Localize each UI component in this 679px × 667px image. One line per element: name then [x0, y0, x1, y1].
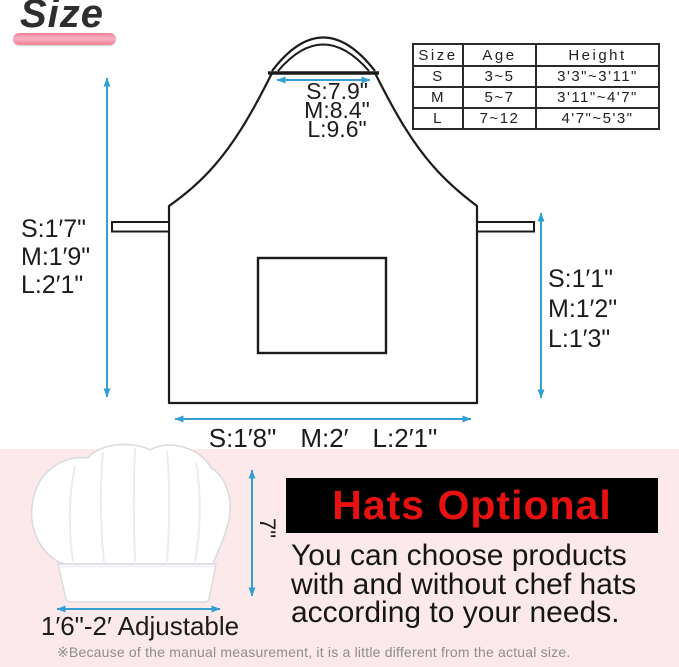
left-height-label: S:1′7" M:1′9" L:2′1" — [21, 215, 90, 299]
left-height-line-s: S:1′7" — [21, 215, 90, 243]
hats-description-line-1: You can choose products — [291, 542, 676, 571]
right-height-line-s: S:1′1" — [548, 264, 617, 294]
right-height-label: S:1′1" M:1′2" L:1′3" — [548, 264, 617, 354]
left-tie — [112, 222, 169, 232]
cell-height-s: 3'3"~3'11" — [536, 66, 659, 87]
table-row: M 5~7 3'11"~4'7" — [413, 87, 659, 108]
size-table-header-size: Size — [413, 44, 463, 66]
hats-description-line-2: with and without chef hats — [291, 571, 676, 600]
cell-height-m: 3'11"~4'7" — [536, 87, 659, 108]
neck-width-label: S:7.9" M:8.4" L:9.6" — [252, 82, 422, 139]
left-height-line-m: M:1′9" — [21, 243, 90, 271]
right-height-line-m: M:1′2" — [548, 294, 617, 324]
hats-description-line-3: according to your needs. — [291, 599, 676, 628]
hat-height-label: 7" — [256, 510, 278, 546]
pocket-outline — [258, 258, 386, 353]
neck-strap-inner-arc — [278, 45, 369, 72]
cell-size-m: M — [413, 87, 463, 108]
hats-description: You can choose products with and without… — [291, 542, 676, 628]
table-row: L 7~12 4'7"~5'3" — [413, 108, 659, 129]
page-title: Size — [20, 0, 104, 37]
cell-height-l: 4'7"~5'3" — [536, 108, 659, 129]
size-table-header-height: Height — [536, 44, 659, 66]
title-underline-accent — [13, 33, 116, 45]
bottom-width-label: S:1′8" M:2′ L:2′1" — [123, 423, 523, 454]
cell-age-l: 7~12 — [463, 108, 536, 129]
bottom-width-item-l: L:2′1" — [373, 423, 438, 454]
neck-strap-outer-arc — [272, 38, 375, 72]
hats-optional-banner: Hats Optional — [286, 478, 658, 533]
cell-size-l: L — [413, 108, 463, 129]
cell-age-s: 3~5 — [463, 66, 536, 87]
size-table-header-row: Size Age Height — [413, 44, 659, 66]
bottom-width-item-s: S:1′8" — [209, 423, 277, 454]
hats-optional-banner-text: Hats Optional — [332, 482, 612, 529]
apron-size-chart: Size S:7.9" M:8.4" L:9.6" S:1′7" M:1′9" … — [0, 0, 679, 667]
table-row: S 3~5 3'3"~3'11" — [413, 66, 659, 87]
left-height-line-l: L:2′1" — [21, 271, 90, 299]
measurement-footnote: ※Because of the manual measurement, it i… — [57, 644, 667, 661]
size-table: Size Age Height S 3~5 3'3"~3'11" M 5~7 3… — [412, 43, 660, 130]
cell-age-m: 5~7 — [463, 87, 536, 108]
size-table-header-age: Age — [463, 44, 536, 66]
neck-width-line-l: L:9.6" — [252, 120, 422, 139]
right-height-line-l: L:1′3" — [548, 324, 617, 354]
right-tie — [477, 222, 534, 232]
bottom-width-item-m: M:2′ — [300, 423, 348, 454]
cell-size-s: S — [413, 66, 463, 87]
hat-adjustable-label: 1′6"-2′ Adjustable — [25, 611, 255, 642]
